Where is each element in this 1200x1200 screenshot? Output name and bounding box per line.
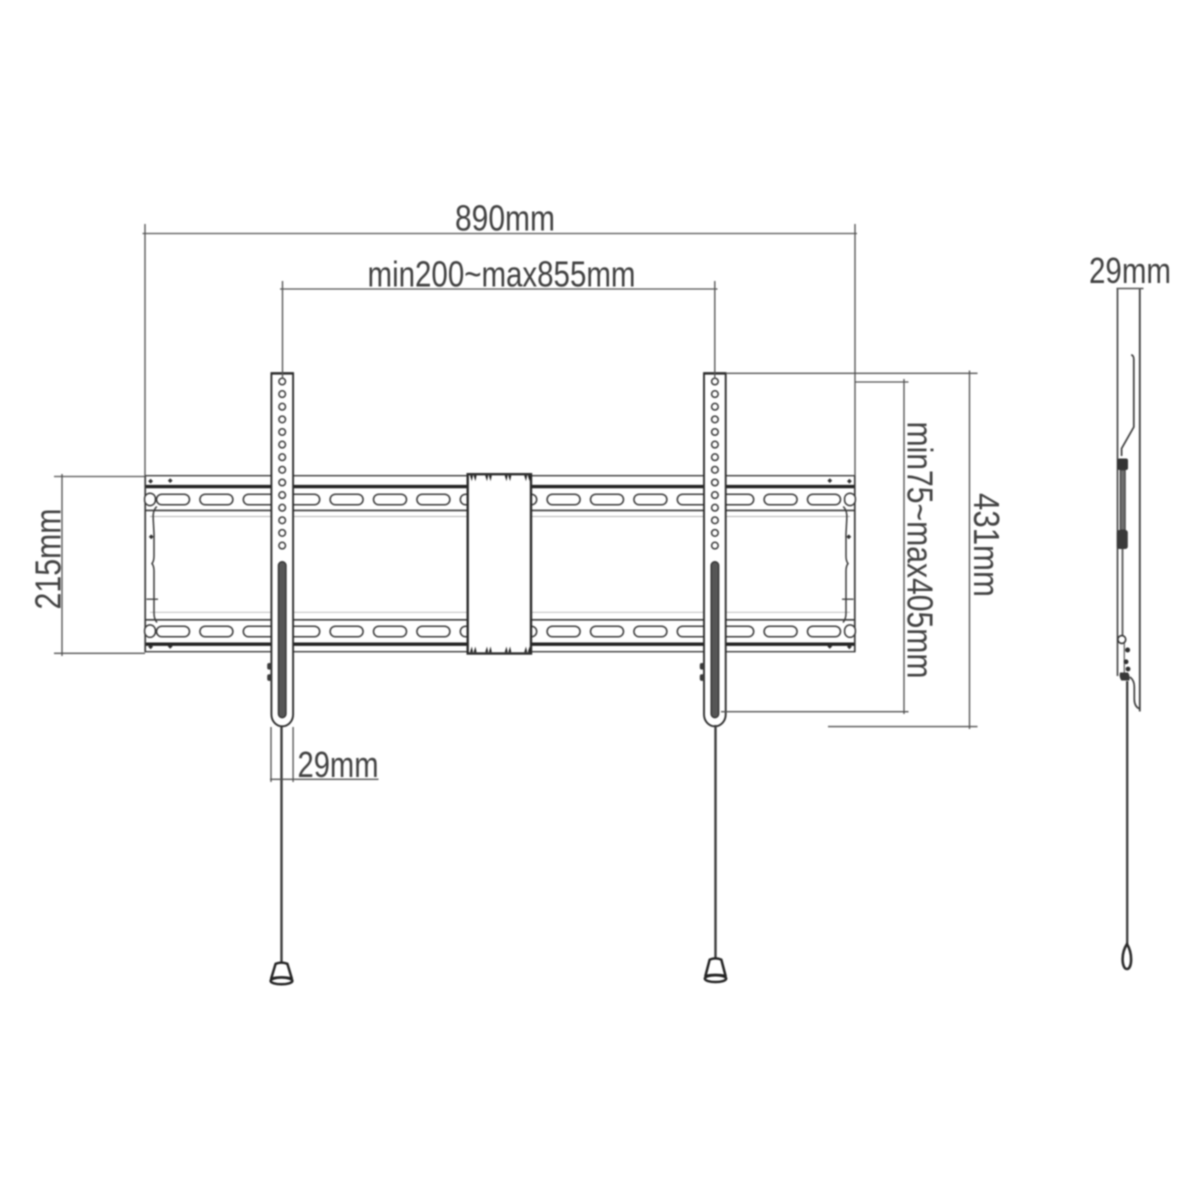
svg-text:431mm: 431mm (966, 493, 1007, 597)
svg-text:890mm: 890mm (455, 198, 555, 239)
svg-text:min75~max405mm: min75~max405mm (900, 422, 941, 679)
svg-text:29mm: 29mm (298, 744, 379, 785)
svg-text:min200~max855mm: min200~max855mm (368, 253, 636, 294)
svg-text:29mm: 29mm (1089, 250, 1171, 291)
svg-text:215mm: 215mm (28, 509, 69, 610)
